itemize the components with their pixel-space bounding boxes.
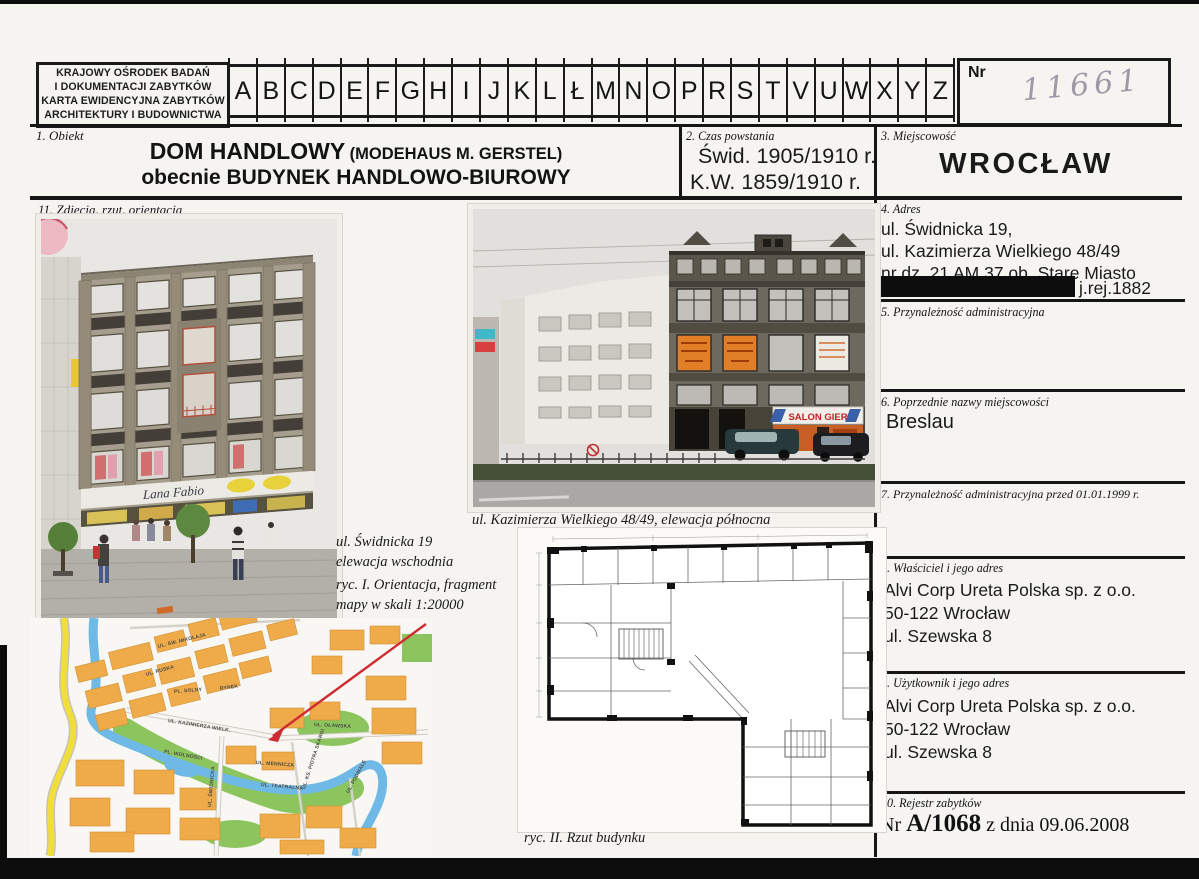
ryc2-caption: ryc. II. Rzut budynku: [524, 828, 645, 848]
alphabet-letter: R: [702, 58, 730, 122]
alphabet-strip: ABCDEFGHIJKLŁMNOPRSTVUWXYZ: [228, 58, 955, 122]
field3-label: 3. Miejscowość: [881, 129, 956, 144]
alphabet-letter: F: [367, 58, 395, 122]
field8-line1: Alvi Corp Ureta Polska sp. z o.o.: [884, 579, 1136, 602]
rule-under-header: [30, 124, 1182, 127]
field8-label: 8. Właściciel i jego adres: [881, 561, 1003, 576]
scanned-heritage-card: KRAJOWY OŚRODEK BADAŃ I DOKUMENTACJI ZAB…: [0, 0, 1199, 879]
field9-label: 9. Użytkownik i jego adres: [881, 676, 1009, 691]
alphabet-letter: G: [395, 58, 423, 122]
rule-f5-f6: [875, 389, 1185, 392]
map-street-label: UL. RUSKA: [145, 664, 175, 678]
field2-value-line2: K.W. 1859/1910 r.: [690, 169, 861, 197]
alphabet-letter: D: [312, 58, 340, 122]
rule-col1-col2: [679, 124, 682, 198]
rule-f7-f8: [875, 556, 1185, 559]
register-number: A/1068: [906, 810, 981, 837]
field7-label: 7. Przynależność administracyjna przed 0…: [881, 487, 1139, 502]
rule-under-title-row: [30, 196, 1182, 200]
photo-east-facade-art: Lana Fabio: [41, 219, 337, 625]
field4-line1: ul. Świdnicka 19,: [881, 218, 1012, 241]
rule-f8-f9: [875, 671, 1185, 674]
field5-label: 5. Przynależność administracyjna: [881, 305, 1045, 320]
ryc1-caption-line1: ryc. I. Orientacja, fragment: [336, 575, 496, 595]
rule-f6-f7: [875, 481, 1185, 484]
photo2-shop-sign: SALON GIER: [788, 412, 847, 423]
rule-f4-f5: [875, 299, 1185, 302]
institution-line: KARTA EWIDENCYJNA ZABYTKÓW: [41, 95, 224, 109]
field4-line2: ul. Kazimierza Wielkiego 48/49: [881, 240, 1120, 263]
institution-line: KRAJOWY OŚRODEK BADAŃ: [56, 67, 210, 81]
ryc1-caption: ryc. I. Orientacja, fragment mapy w skal…: [336, 575, 496, 615]
map-street-label: UL. PODWALE: [345, 759, 368, 794]
photo-north-elevation-art: SALON GIER: [473, 209, 875, 507]
field2-label: 2. Czas powstania: [686, 129, 774, 144]
photo2-caption: ul. Kazimierza Wielkiego 48/49, elewacja…: [472, 510, 770, 530]
photo1-caption-line1: ul. Świdnicka 19: [336, 532, 453, 552]
map-street-label: UL. MENNICZA: [256, 760, 295, 769]
alphabet-letter: Z: [925, 58, 955, 122]
alphabet-letter: B: [256, 58, 284, 122]
alphabet-letter: K: [507, 58, 535, 122]
map-street-label: PL. SOLNY: [174, 687, 203, 695]
orientation-map: UL. ŚW. MIKOŁAJAUL. RUSKAPL. SOLNYRYNEKU…: [30, 618, 432, 856]
map-street-labels: UL. ŚW. MIKOŁAJAUL. RUSKAPL. SOLNYRYNEKU…: [30, 618, 432, 856]
map-street-label: RYNEK: [220, 683, 239, 691]
register-date: z dnia 09.06.2008: [981, 814, 1129, 836]
alphabet-letter: P: [674, 58, 702, 122]
alphabet-letter: Y: [897, 58, 925, 122]
object-title-line1: DOM HANDLOWY (MODEHAUS M. GERSTEL): [40, 138, 672, 165]
rule-f9-f10: [875, 791, 1185, 794]
field8-line2: 50-122 Wrocław: [884, 602, 1010, 625]
alphabet-letter: L: [535, 58, 563, 122]
field8-line3: ul. Szewska 8: [884, 625, 992, 648]
nr-handwritten-value: 11661: [1021, 63, 1144, 108]
redaction-bar: [877, 276, 1075, 297]
photo1-caption: ul. Świdnicka 19 elewacja wschodnia: [336, 532, 453, 572]
alphabet-letter: W: [842, 58, 870, 122]
field6-label: 6. Poprzednie nazwy miejscowości: [881, 395, 1049, 410]
alphabet-letter: J: [479, 58, 507, 122]
alphabet-letter: T: [758, 58, 786, 122]
ryc1-caption-line2: mapy w skali 1:20000: [336, 595, 496, 615]
alphabet-letter: O: [646, 58, 674, 122]
alphabet-letter: N: [618, 58, 646, 122]
floor-plan: [518, 528, 886, 832]
institution-box: KRAJOWY OŚRODEK BADAŃ I DOKUMENTACJI ZAB…: [36, 62, 230, 128]
object-title-line2: obecnie BUDYNEK HANDLOWO-BIUROWY: [40, 166, 672, 190]
alphabet-letter: M: [591, 58, 619, 122]
alphabet-bottom-rule: [228, 115, 955, 118]
object-name: DOM HANDLOWY: [150, 138, 345, 164]
alphabet-letter: E: [340, 58, 368, 122]
map-street-label: UL. TEATRALNA: [261, 782, 304, 792]
alphabet-letter: A: [228, 58, 256, 122]
institution-line: I DOKUMENTACJI ZABYTKÓW: [55, 81, 212, 95]
alphabet-letter: U: [814, 58, 842, 122]
nr-label: Nr: [968, 64, 986, 82]
alphabet-letter: V: [786, 58, 814, 122]
field10-value: Nr A/1068 z dnia 09.06.2008: [880, 810, 1129, 838]
alphabet-letter: X: [869, 58, 897, 122]
card-number-box: Nr 11661: [957, 58, 1171, 126]
alphabet-letter: S: [730, 58, 758, 122]
alphabet-letter: H: [423, 58, 451, 122]
field9-line3: ul. Szewska 8: [884, 741, 992, 764]
alphabet-letter: C: [284, 58, 312, 122]
alphabet-top-rule: [228, 64, 955, 67]
alphabet-letter: Ł: [563, 58, 591, 122]
institution-line: ARCHITEKTURY I BUDOWNICTWA: [44, 109, 221, 123]
object-title: DOM HANDLOWY (MODEHAUS M. GERSTEL) obecn…: [40, 138, 672, 190]
field9-line2: 50-122 Wrocław: [884, 718, 1010, 741]
photo1-caption-line2: elewacja wschodnia: [336, 552, 453, 572]
photo-north-elevation: SALON GIER: [468, 204, 880, 512]
map-street-label: PL. WOLNOŚCI: [163, 749, 203, 762]
map-street-label: UL. ŚW. MIKOŁAJA: [157, 632, 206, 650]
map-street-label: UL. ŚWIDNICKA: [207, 766, 217, 807]
field6-value: Breslau: [886, 411, 954, 434]
photo-east-facade: Lana Fabio: [36, 214, 342, 630]
field2-value-line1: Świd. 1905/1910 r.: [698, 143, 876, 171]
field4-register-ref: j.rej.1882: [1079, 277, 1151, 300]
field10-label: 10. Rejestr zabytków: [881, 796, 981, 811]
scan-edge-artifact: [0, 645, 7, 858]
field3-value: WROCŁAW: [875, 148, 1177, 181]
alphabet-letter: I: [451, 58, 479, 122]
field9-line1: Alvi Corp Ureta Polska sp. z o.o.: [884, 695, 1136, 718]
object-name-historic: (MODEHAUS M. GERSTEL): [350, 145, 563, 163]
map-street-label: UL. KAZIMIERZA WIELK.: [168, 718, 231, 734]
field4-label: 4. Adres: [881, 202, 921, 217]
floor-plan-art: [523, 533, 881, 827]
map-street-label: UL. KS. PIOTRA SKARGI: [301, 728, 326, 790]
